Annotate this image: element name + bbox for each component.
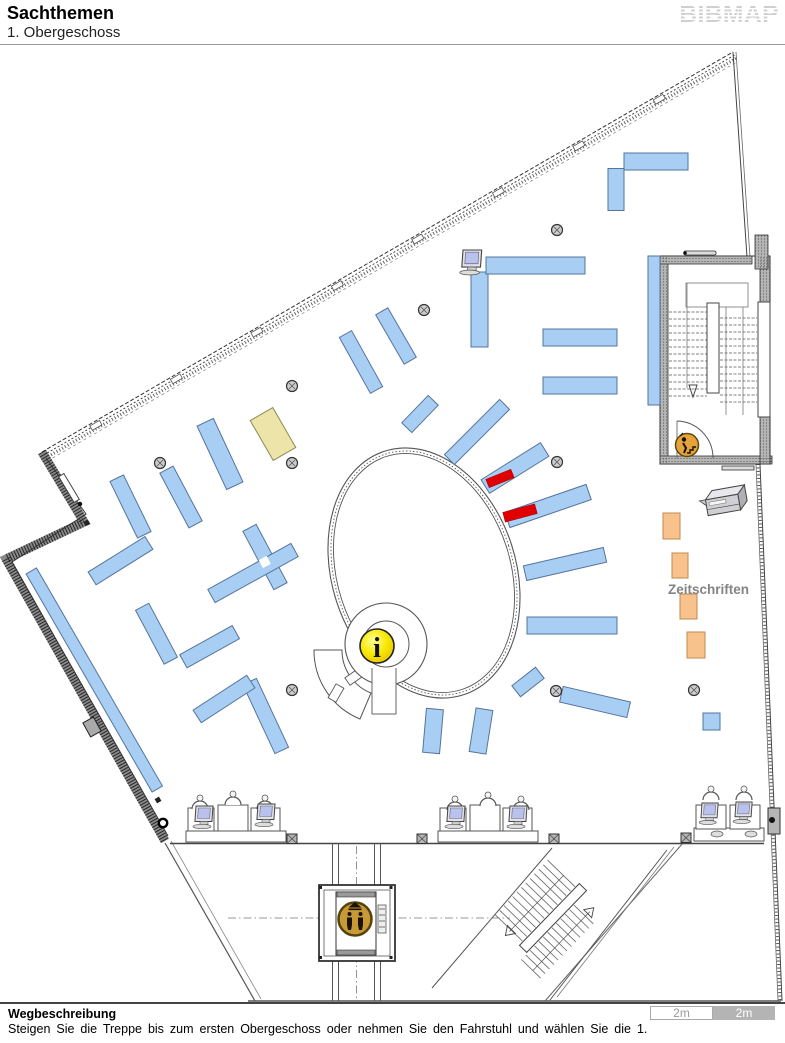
svg-text:Zeitschriften: Zeitschriften xyxy=(668,582,749,597)
svg-text:i: i xyxy=(373,633,381,664)
